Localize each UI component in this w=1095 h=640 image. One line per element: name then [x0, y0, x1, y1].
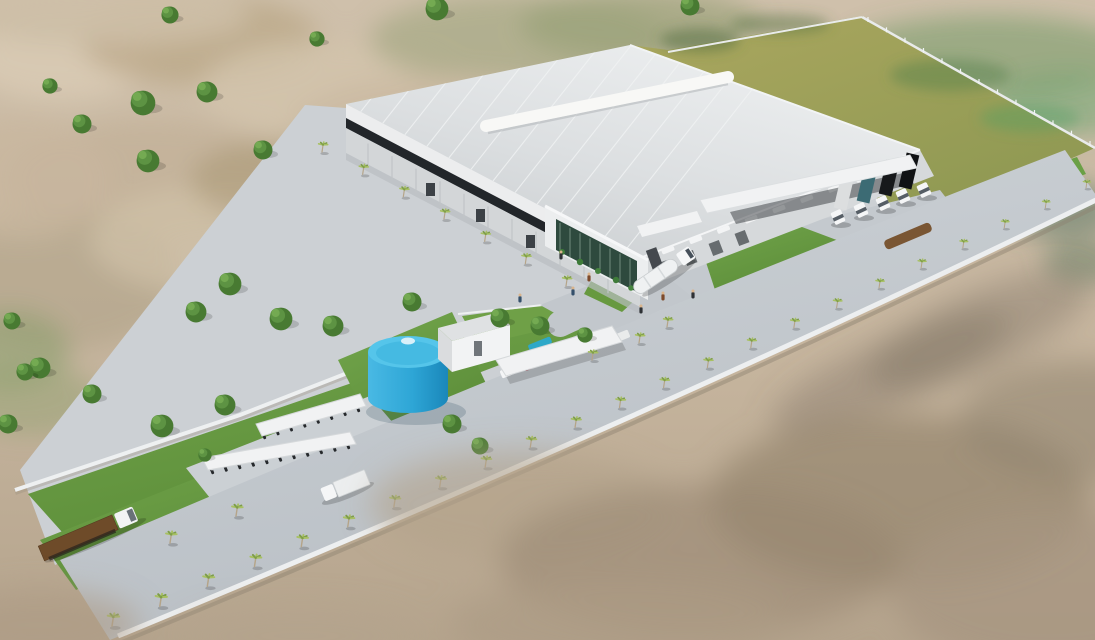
tree [492, 310, 499, 317]
person [691, 292, 694, 299]
palm-crown [301, 537, 303, 539]
person [518, 296, 521, 303]
tree [5, 313, 11, 319]
pump-house-door [474, 341, 482, 356]
tree [44, 79, 49, 84]
water-tank-top-inner [376, 341, 440, 365]
palm-crown [322, 144, 324, 146]
tree [74, 116, 81, 123]
dock-cab-shadow [917, 195, 937, 201]
palm-crown [963, 241, 965, 243]
tree [255, 142, 262, 149]
person-head [572, 287, 575, 290]
tree [153, 416, 161, 424]
tree [216, 396, 223, 403]
palm-crown [921, 261, 923, 263]
palm-shadow [524, 264, 533, 267]
tree [0, 416, 7, 423]
palm-crown [1045, 201, 1047, 203]
palm-shadow [205, 586, 215, 590]
palm-crown [236, 506, 238, 508]
palm-shadow [1085, 188, 1092, 190]
person-head [560, 251, 563, 254]
tree [579, 328, 584, 333]
palm-crown [207, 576, 210, 579]
palm-shadow [299, 547, 309, 551]
palm-crown [639, 335, 641, 337]
palm-shadow [920, 268, 928, 271]
person [571, 289, 574, 296]
person-head [519, 294, 522, 297]
tree [31, 359, 38, 366]
palm-shadow [168, 543, 178, 547]
palm-crown [363, 166, 365, 168]
palm-crown [575, 419, 577, 421]
person [639, 307, 642, 314]
palm-shadow [792, 328, 800, 331]
palm-shadow [877, 288, 885, 291]
palm-crown [592, 352, 594, 354]
tree [444, 416, 451, 423]
tree [311, 32, 316, 37]
tree [221, 274, 229, 282]
palm-crown [403, 188, 405, 190]
palm-shadow [361, 174, 370, 177]
palm-crown [879, 280, 881, 282]
tree [139, 151, 147, 159]
tree [198, 83, 205, 90]
palm-shadow [442, 219, 451, 222]
palm-crown [485, 233, 487, 235]
dock-cab-shadow [876, 208, 896, 214]
tree [272, 309, 280, 317]
atrium-plant [628, 285, 634, 291]
palm-crown [1004, 221, 1006, 223]
dock-cab-shadow [831, 222, 851, 228]
palm-shadow [402, 197, 411, 200]
palm-shadow [1044, 208, 1051, 211]
atrium-plant [595, 268, 601, 274]
person-head [662, 292, 665, 295]
tree [84, 386, 91, 393]
person-head [692, 290, 695, 293]
industrial-facility-render [0, 0, 1095, 640]
palm-shadow [573, 427, 582, 430]
palm-crown [837, 300, 839, 302]
palm-shadow [590, 360, 599, 363]
palm-crown [530, 438, 532, 440]
palm-crown [170, 533, 172, 535]
dock-cab-shadow [854, 215, 874, 221]
palm-crown [707, 359, 709, 361]
palm-crown [751, 340, 753, 342]
tree [163, 7, 169, 13]
palm-shadow [665, 327, 674, 330]
palm-shadow [706, 368, 714, 371]
tree [199, 449, 204, 454]
tree [404, 294, 411, 301]
palm-shadow [662, 388, 671, 391]
tree [187, 303, 194, 310]
palm-shadow [1003, 228, 1010, 231]
palm-shadow [749, 348, 757, 351]
atrium-plant [613, 277, 619, 283]
facade-door-2 [476, 209, 485, 222]
palm-crown [444, 211, 446, 213]
person-head [588, 273, 591, 276]
person [559, 253, 562, 260]
palm-shadow [618, 408, 627, 411]
palm-crown [566, 278, 568, 280]
palm-crown [1086, 181, 1088, 183]
palm-shadow [320, 152, 329, 155]
palm-shadow [252, 567, 262, 571]
palm-crown [254, 557, 256, 559]
atrium-plant [577, 259, 583, 265]
palm-crown [664, 379, 666, 381]
tree [473, 438, 479, 444]
facade-door-3 [526, 235, 535, 248]
palm-crown [525, 255, 527, 257]
person [661, 294, 664, 301]
tree [532, 318, 539, 325]
palm-crown [794, 320, 796, 322]
palm-shadow [346, 527, 356, 531]
palm-shadow [234, 516, 244, 520]
palm-shadow [961, 248, 968, 251]
palm-shadow [158, 606, 169, 610]
palm-shadow [528, 447, 537, 450]
dock-cab-shadow [896, 201, 916, 207]
person-head [640, 305, 643, 308]
tree [324, 317, 331, 324]
person [587, 275, 590, 282]
facade-door-1 [426, 183, 435, 196]
palm-crown [667, 319, 669, 321]
palm-shadow [564, 286, 573, 289]
palm-crown [348, 517, 350, 519]
palm-shadow [835, 308, 843, 311]
palm-crown [160, 596, 163, 599]
water-tank-cap [401, 338, 415, 345]
tree [133, 92, 142, 101]
palm-crown [620, 399, 622, 401]
palm-shadow [483, 241, 492, 244]
palm-shadow [637, 343, 646, 346]
tree [18, 364, 24, 370]
aerial-render-canvas [0, 0, 1095, 640]
